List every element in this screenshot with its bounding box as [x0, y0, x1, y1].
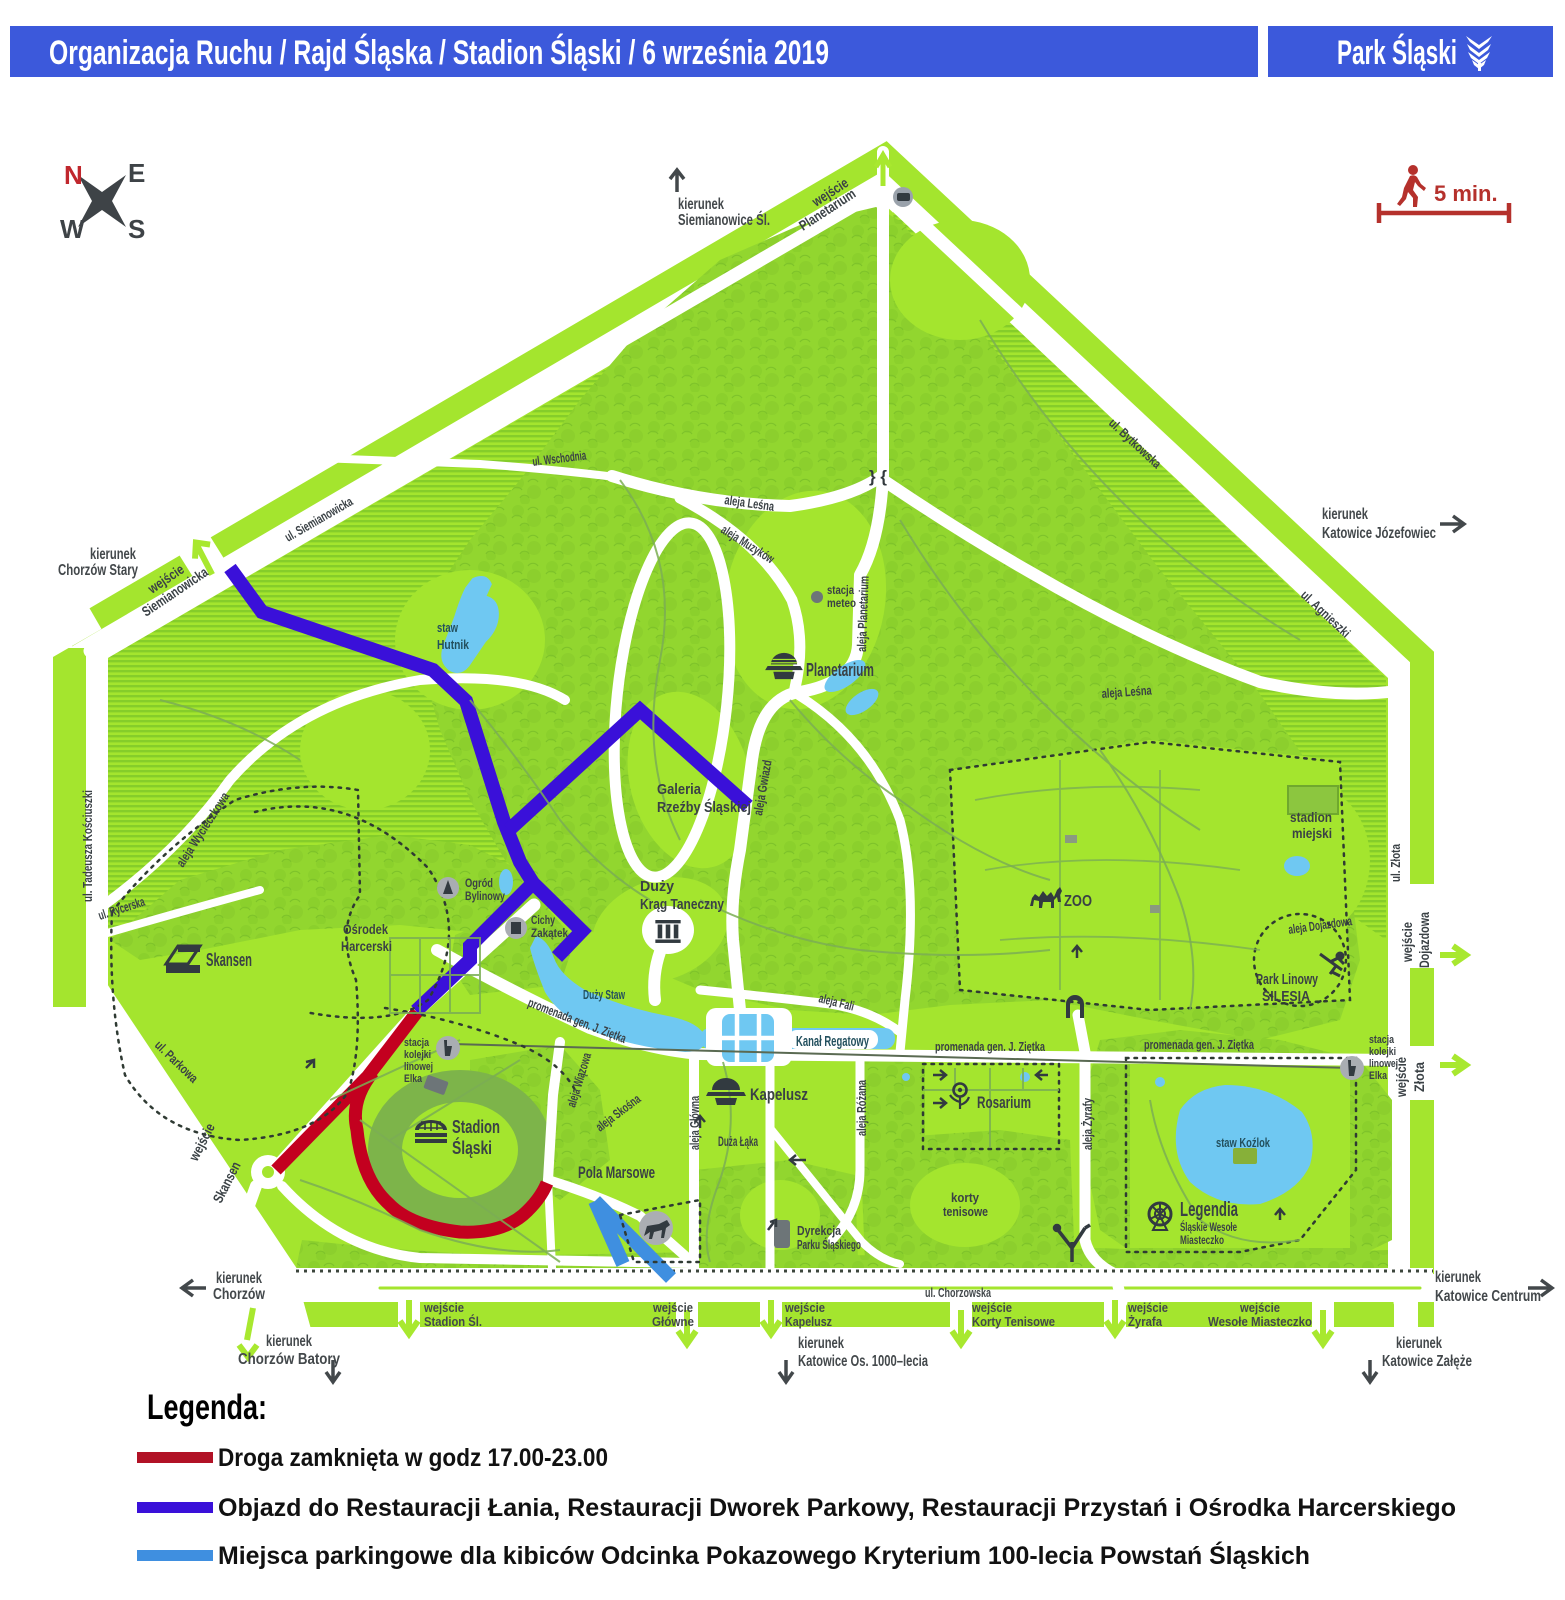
svg-text:Organizacja Ruchu / Rajd Śląsk: Organizacja Ruchu / Rajd Śląska / Stadio… — [49, 34, 829, 72]
svg-text:Główne: Główne — [652, 1314, 694, 1329]
svg-text:Rzeźby Śląskiej: Rzeźby Śląskiej — [657, 798, 751, 816]
svg-text:Kapelusz: Kapelusz — [785, 1314, 832, 1329]
svg-text:Wesołe Miasteczko: Wesołe Miasteczko — [1208, 1314, 1312, 1329]
svg-text:Elka: Elka — [404, 1073, 423, 1085]
svg-text:aleja Planetarium: aleja Planetarium — [854, 576, 872, 652]
svg-text:stacja: stacja — [827, 583, 854, 597]
svg-text:kierunek: kierunek — [90, 546, 136, 563]
svg-text:Stadion: Stadion — [452, 1117, 500, 1137]
svg-text:Park Śląski: Park Śląski — [1337, 34, 1457, 72]
svg-text:stacja: stacja — [404, 1037, 430, 1049]
svg-text:stadion: stadion — [1290, 809, 1332, 825]
svg-text:kierunek: kierunek — [678, 196, 724, 213]
svg-text:tenisowe: tenisowe — [943, 1204, 988, 1219]
svg-text:meteo: meteo — [827, 596, 856, 610]
svg-text:Katowice Centrum: Katowice Centrum — [1435, 1288, 1541, 1305]
svg-text:wejście: wejście — [784, 1300, 825, 1315]
svg-text:Śląskie Wesołe: Śląskie Wesołe — [1180, 1219, 1237, 1234]
svg-text:Parku Śląskiego: Parku Śląskiego — [797, 1237, 861, 1252]
svg-text:} {: } { — [869, 467, 887, 486]
svg-text:Duży Staw: Duży Staw — [583, 987, 626, 1002]
svg-text:kolejki: kolejki — [404, 1049, 431, 1061]
svg-text:Elka: Elka — [1369, 1070, 1388, 1082]
svg-text:Hutnik: Hutnik — [437, 637, 470, 652]
svg-text:S: S — [128, 214, 145, 244]
svg-text:linowej: linowej — [404, 1061, 433, 1073]
svg-text:SILESIA: SILESIA — [1262, 988, 1310, 1005]
svg-text:Duży: Duży — [640, 878, 675, 895]
svg-text:Skansen: Skansen — [206, 950, 252, 970]
svg-text:wejście: wejście — [971, 1300, 1012, 1315]
svg-text:Stadion Śl.: Stadion Śl. — [424, 1314, 482, 1329]
svg-text:E: E — [128, 158, 145, 188]
svg-text:Miejsca parkingowe dla kibiców: Miejsca parkingowe dla kibiców Odcinka P… — [218, 1540, 1310, 1570]
svg-text:ZOO: ZOO — [1064, 893, 1092, 910]
svg-text:Pola Marsowe: Pola Marsowe — [578, 1163, 655, 1182]
svg-text:Objazd do Restauracji Łania, R: Objazd do Restauracji Łania, Restauracji… — [218, 1494, 1456, 1522]
svg-text:wejście: wejście — [1393, 1057, 1409, 1098]
svg-text:Duża Łąka: Duża Łąka — [718, 1133, 758, 1149]
svg-text:Katowice Os. 1000–lecia: Katowice Os. 1000–lecia — [798, 1353, 928, 1370]
svg-text:miejski: miejski — [1292, 825, 1332, 841]
svg-text:ul. Tadeusza Kościuszki: ul. Tadeusza Kościuszki — [80, 790, 95, 902]
svg-text:Śląski: Śląski — [452, 1137, 492, 1158]
svg-text:wejście: wejście — [1239, 1300, 1280, 1315]
svg-text:ul. Złota: ul. Złota — [1388, 843, 1403, 882]
svg-text:Park Linowy: Park Linowy — [1256, 971, 1318, 988]
svg-text:Legendia: Legendia — [1180, 1199, 1239, 1221]
svg-text:Chorzów Batory: Chorzów Batory — [238, 1351, 340, 1368]
svg-text:Katowice Józefowiec: Katowice Józefowiec — [1322, 525, 1436, 542]
svg-text:Galeria: Galeria — [657, 781, 702, 798]
svg-text:Cichy: Cichy — [531, 913, 555, 927]
svg-text:kierunek: kierunek — [216, 1270, 262, 1287]
svg-text:wejście: wejście — [423, 1300, 464, 1315]
svg-text:kierunek: kierunek — [1435, 1269, 1481, 1286]
svg-text:Planetarium: Planetarium — [806, 660, 874, 680]
svg-text:staw: staw — [437, 620, 459, 635]
svg-text:Rosarium: Rosarium — [977, 1093, 1031, 1112]
svg-text:aleja Różana: aleja Różana — [854, 1079, 869, 1136]
svg-text:staw Koźlok: staw Koźlok — [1216, 1135, 1271, 1150]
svg-text:Korty Tenisowe: Korty Tenisowe — [972, 1314, 1055, 1329]
svg-text:ul. Chorzowska: ul. Chorzowska — [925, 1285, 992, 1300]
svg-text:Krąg Taneczny: Krąg Taneczny — [640, 896, 725, 913]
svg-text:wejście: wejście — [1127, 1300, 1168, 1315]
svg-text:kolejki: kolejki — [1369, 1046, 1396, 1058]
svg-text:Siemianowice Śl.: Siemianowice Śl. — [678, 210, 770, 229]
svg-text:Zakątek: Zakątek — [531, 926, 568, 940]
svg-text:wejście: wejście — [1399, 922, 1415, 963]
svg-text:5 min.: 5 min. — [1434, 181, 1498, 206]
svg-text:kierunek: kierunek — [1322, 506, 1368, 523]
svg-text:wejście: wejście — [652, 1300, 693, 1315]
svg-text:korty: korty — [951, 1190, 980, 1205]
svg-text:Dyrekcja: Dyrekcja — [797, 1223, 842, 1238]
svg-text:Bylinowy: Bylinowy — [465, 889, 505, 903]
svg-text:Legenda:: Legenda: — [147, 1388, 267, 1427]
svg-text:aleja Żyrafy: aleja Żyrafy — [1080, 1097, 1095, 1150]
svg-text:W: W — [60, 214, 85, 244]
svg-text:Droga zamknięta w godz 17.00-2: Droga zamknięta w godz 17.00-23.00 — [218, 1444, 608, 1472]
svg-text:kierunek: kierunek — [266, 1333, 312, 1350]
svg-text:Chorzów Stary: Chorzów Stary — [58, 562, 138, 579]
svg-text:Żyrafa: Żyrafa — [1128, 1314, 1163, 1329]
svg-text:Chorzów: Chorzów — [213, 1286, 265, 1303]
svg-text:stacja: stacja — [1369, 1034, 1395, 1046]
svg-text:kierunek: kierunek — [1396, 1335, 1442, 1352]
svg-text:Kapelusz: Kapelusz — [750, 1085, 808, 1104]
svg-text:aleja Główna: aleja Główna — [687, 1095, 702, 1150]
svg-text:promenada gen. J. Ziętka: promenada gen. J. Ziętka — [1144, 1037, 1255, 1052]
svg-text:Katowice Załęże: Katowice Załęże — [1382, 1353, 1472, 1370]
svg-text:Dojazdowa: Dojazdowa — [1416, 912, 1432, 968]
svg-text:kierunek: kierunek — [798, 1335, 844, 1352]
svg-text:Ośrodek: Ośrodek — [343, 921, 388, 937]
svg-text:Miasteczko: Miasteczko — [1180, 1233, 1224, 1247]
svg-text:Kanał Regatowy: Kanał Regatowy — [796, 1033, 869, 1050]
svg-text:Harcerski: Harcerski — [341, 938, 392, 954]
svg-text:Złota: Złota — [1411, 1062, 1427, 1092]
svg-text:N: N — [64, 160, 83, 190]
svg-text:Ogród: Ogród — [465, 876, 493, 890]
svg-text:promenada gen. J. Ziętka: promenada gen. J. Ziętka — [935, 1039, 1046, 1054]
